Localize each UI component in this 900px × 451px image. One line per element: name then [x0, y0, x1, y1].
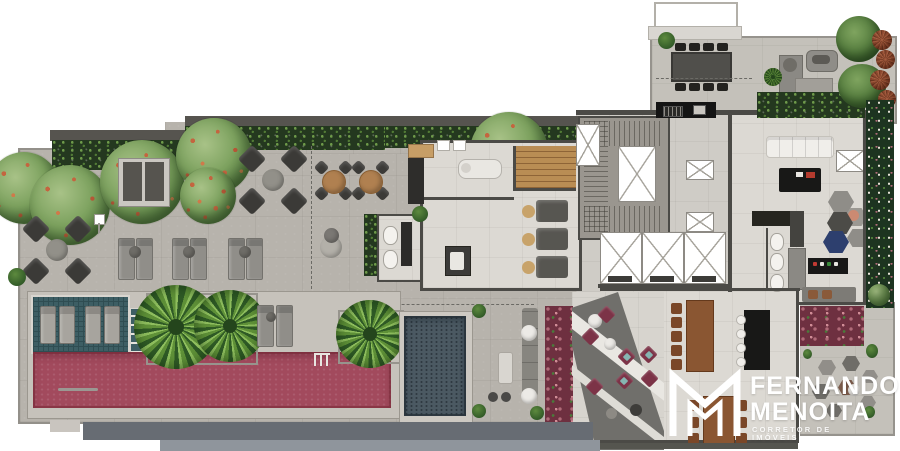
terrace-chair	[675, 43, 686, 51]
round-table	[46, 239, 68, 261]
shrub	[8, 268, 26, 286]
stair-shaft	[618, 146, 656, 202]
towel	[522, 205, 535, 218]
sun-lounger	[276, 305, 293, 347]
sun-lounger	[246, 238, 263, 280]
bottle	[820, 262, 824, 266]
bbq-sink	[693, 105, 706, 115]
side-table	[183, 246, 195, 258]
round-table	[521, 388, 537, 404]
east-garden-strip	[866, 100, 894, 308]
shaft-vent	[686, 212, 714, 232]
terrace-chair	[717, 43, 728, 51]
bar-stool	[736, 315, 746, 325]
bottle	[813, 262, 817, 266]
fascia-step	[50, 420, 80, 432]
ornamental-grass	[876, 50, 895, 69]
in-water-lounger	[104, 306, 120, 344]
shower-tray	[450, 252, 464, 270]
fascia-band-lower	[160, 440, 600, 451]
floor-plan-rendering: FERNANDO MENOITA CORRETOR DE IMÓVEIS	[0, 0, 900, 451]
shaft-vent	[576, 124, 600, 166]
shrub	[530, 406, 544, 420]
roof-overhang-line	[311, 146, 312, 304]
modular-sofa	[522, 308, 538, 396]
brand-logo: FERNANDO MENOITA CORRETOR DE IMÓVEIS	[660, 360, 870, 442]
elevator-sill	[650, 276, 674, 282]
small-plant	[764, 68, 782, 86]
door-threshold	[453, 140, 466, 151]
small-tree	[868, 284, 890, 306]
bench-pillow	[822, 290, 832, 299]
in-water-lounger	[85, 306, 101, 344]
round-table	[521, 325, 537, 341]
wood-bistro-table	[359, 170, 383, 194]
pool-washroom	[377, 214, 423, 282]
wing-south-wall	[798, 302, 866, 305]
shrub	[472, 304, 486, 318]
flower-hedge	[800, 306, 864, 346]
spa-lounger	[536, 200, 568, 222]
towel	[522, 261, 535, 274]
stall-wall	[766, 228, 768, 290]
washroom-counter	[401, 222, 412, 266]
skylight-panel	[145, 162, 164, 201]
bar-stool	[736, 343, 746, 353]
gourmet-sill	[600, 443, 798, 449]
round-table	[262, 169, 284, 191]
table-book	[806, 172, 815, 178]
shaft-vent	[686, 160, 714, 180]
elevator-sill	[608, 276, 632, 282]
toilet	[770, 253, 784, 271]
bar-stool	[736, 329, 746, 339]
palm-tree	[194, 290, 266, 362]
side-table	[266, 312, 276, 322]
sun-lounger	[136, 238, 153, 280]
lounger	[498, 352, 513, 384]
wood-chair	[671, 331, 682, 342]
skylight-panel	[123, 162, 142, 201]
cabinet-column	[788, 248, 806, 290]
brand-monogram-icon	[666, 364, 746, 440]
bottle	[834, 262, 838, 266]
in-water-lounger	[59, 306, 75, 344]
lounge-sofa	[766, 136, 834, 158]
shrub	[472, 404, 486, 418]
grill-counter	[795, 78, 833, 93]
side-table	[129, 246, 141, 258]
bottle	[827, 262, 831, 266]
ornamental-grass	[870, 70, 890, 90]
flowering-tree	[180, 168, 236, 224]
gourmet-north-wall	[600, 288, 800, 291]
table-tray	[796, 172, 803, 177]
chimney-cap	[783, 58, 797, 72]
shrub	[658, 32, 675, 49]
elevator-sill	[692, 276, 716, 282]
pool-rail	[58, 388, 98, 391]
fire-pit-insert	[812, 55, 830, 64]
brand-name-line2: MENOITA	[750, 400, 870, 425]
core-divider-wall	[728, 112, 732, 292]
wood-chair	[671, 317, 682, 328]
sauna	[513, 146, 576, 191]
massage-pillow	[461, 163, 471, 173]
palm-tree	[336, 300, 404, 368]
wood-chair	[671, 303, 682, 314]
brand-tagline: CORRETOR DE IMÓVEIS	[752, 426, 870, 441]
small-plant	[866, 344, 878, 358]
pouf	[501, 392, 511, 402]
sun-lounger	[172, 238, 189, 280]
flower-bed	[545, 306, 573, 422]
terrace-chair	[703, 83, 714, 91]
overhang-line	[656, 78, 752, 79]
spa-partition	[422, 197, 514, 200]
sun-lounger	[190, 238, 207, 280]
toilet	[770, 233, 784, 251]
small-plant	[803, 349, 812, 359]
ornamental-grass	[872, 30, 892, 50]
hedge-screen	[364, 214, 377, 276]
stone-stool	[324, 228, 339, 243]
wood-bistro-table	[322, 170, 346, 194]
spa-bar-top	[408, 144, 434, 158]
terrace-chair	[689, 83, 700, 91]
plunge-pool	[404, 316, 466, 416]
terrace-chair	[717, 83, 728, 91]
pouf	[606, 408, 617, 419]
spa-lounger	[536, 228, 568, 250]
pouf	[488, 392, 498, 402]
sun-lounger	[228, 238, 245, 280]
bar-credenza	[808, 258, 848, 274]
terrace-chair	[675, 83, 686, 91]
pouf	[630, 404, 642, 416]
towel	[522, 233, 535, 246]
brand-name-line1: FERNANDO	[750, 374, 900, 399]
terrace-chair	[689, 43, 700, 51]
potted-plant	[412, 206, 428, 222]
sun-lounger	[118, 238, 135, 280]
light-post-stem	[98, 223, 100, 233]
side-table	[239, 246, 251, 258]
toilet	[383, 250, 398, 269]
in-water-lounger	[40, 306, 56, 344]
wood-chair	[671, 345, 682, 356]
grill-grate	[663, 106, 683, 117]
door-threshold	[437, 140, 450, 151]
terrace-chair	[703, 43, 714, 51]
bench-pillow	[808, 290, 818, 299]
kitchenette-arm	[790, 211, 804, 247]
round-table	[604, 338, 616, 350]
pool-ladder	[314, 353, 330, 366]
fascia-band	[83, 422, 593, 440]
side-table-x	[836, 150, 864, 172]
spa-lounger	[536, 256, 568, 278]
toilet	[383, 226, 398, 245]
